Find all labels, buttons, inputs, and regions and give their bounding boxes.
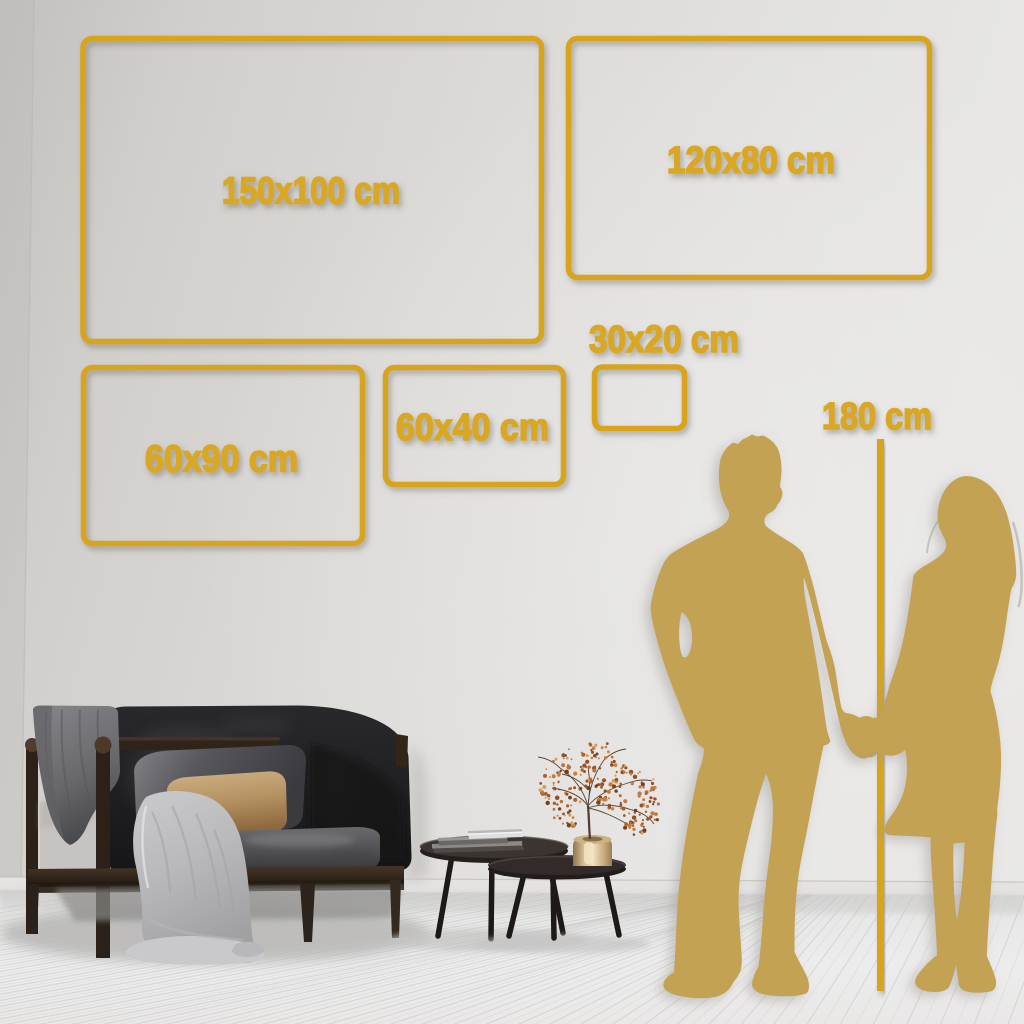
svg-text:60x90 cm: 60x90 cm <box>145 437 298 480</box>
svg-text:180 cm: 180 cm <box>822 396 932 438</box>
svg-text:150x100 cm: 150x100 cm <box>222 170 400 212</box>
svg-text:60x40 cm: 60x40 cm <box>396 405 549 448</box>
svg-text:120x80 cm: 120x80 cm <box>667 139 835 182</box>
svg-text:30x20 cm: 30x20 cm <box>589 318 739 361</box>
